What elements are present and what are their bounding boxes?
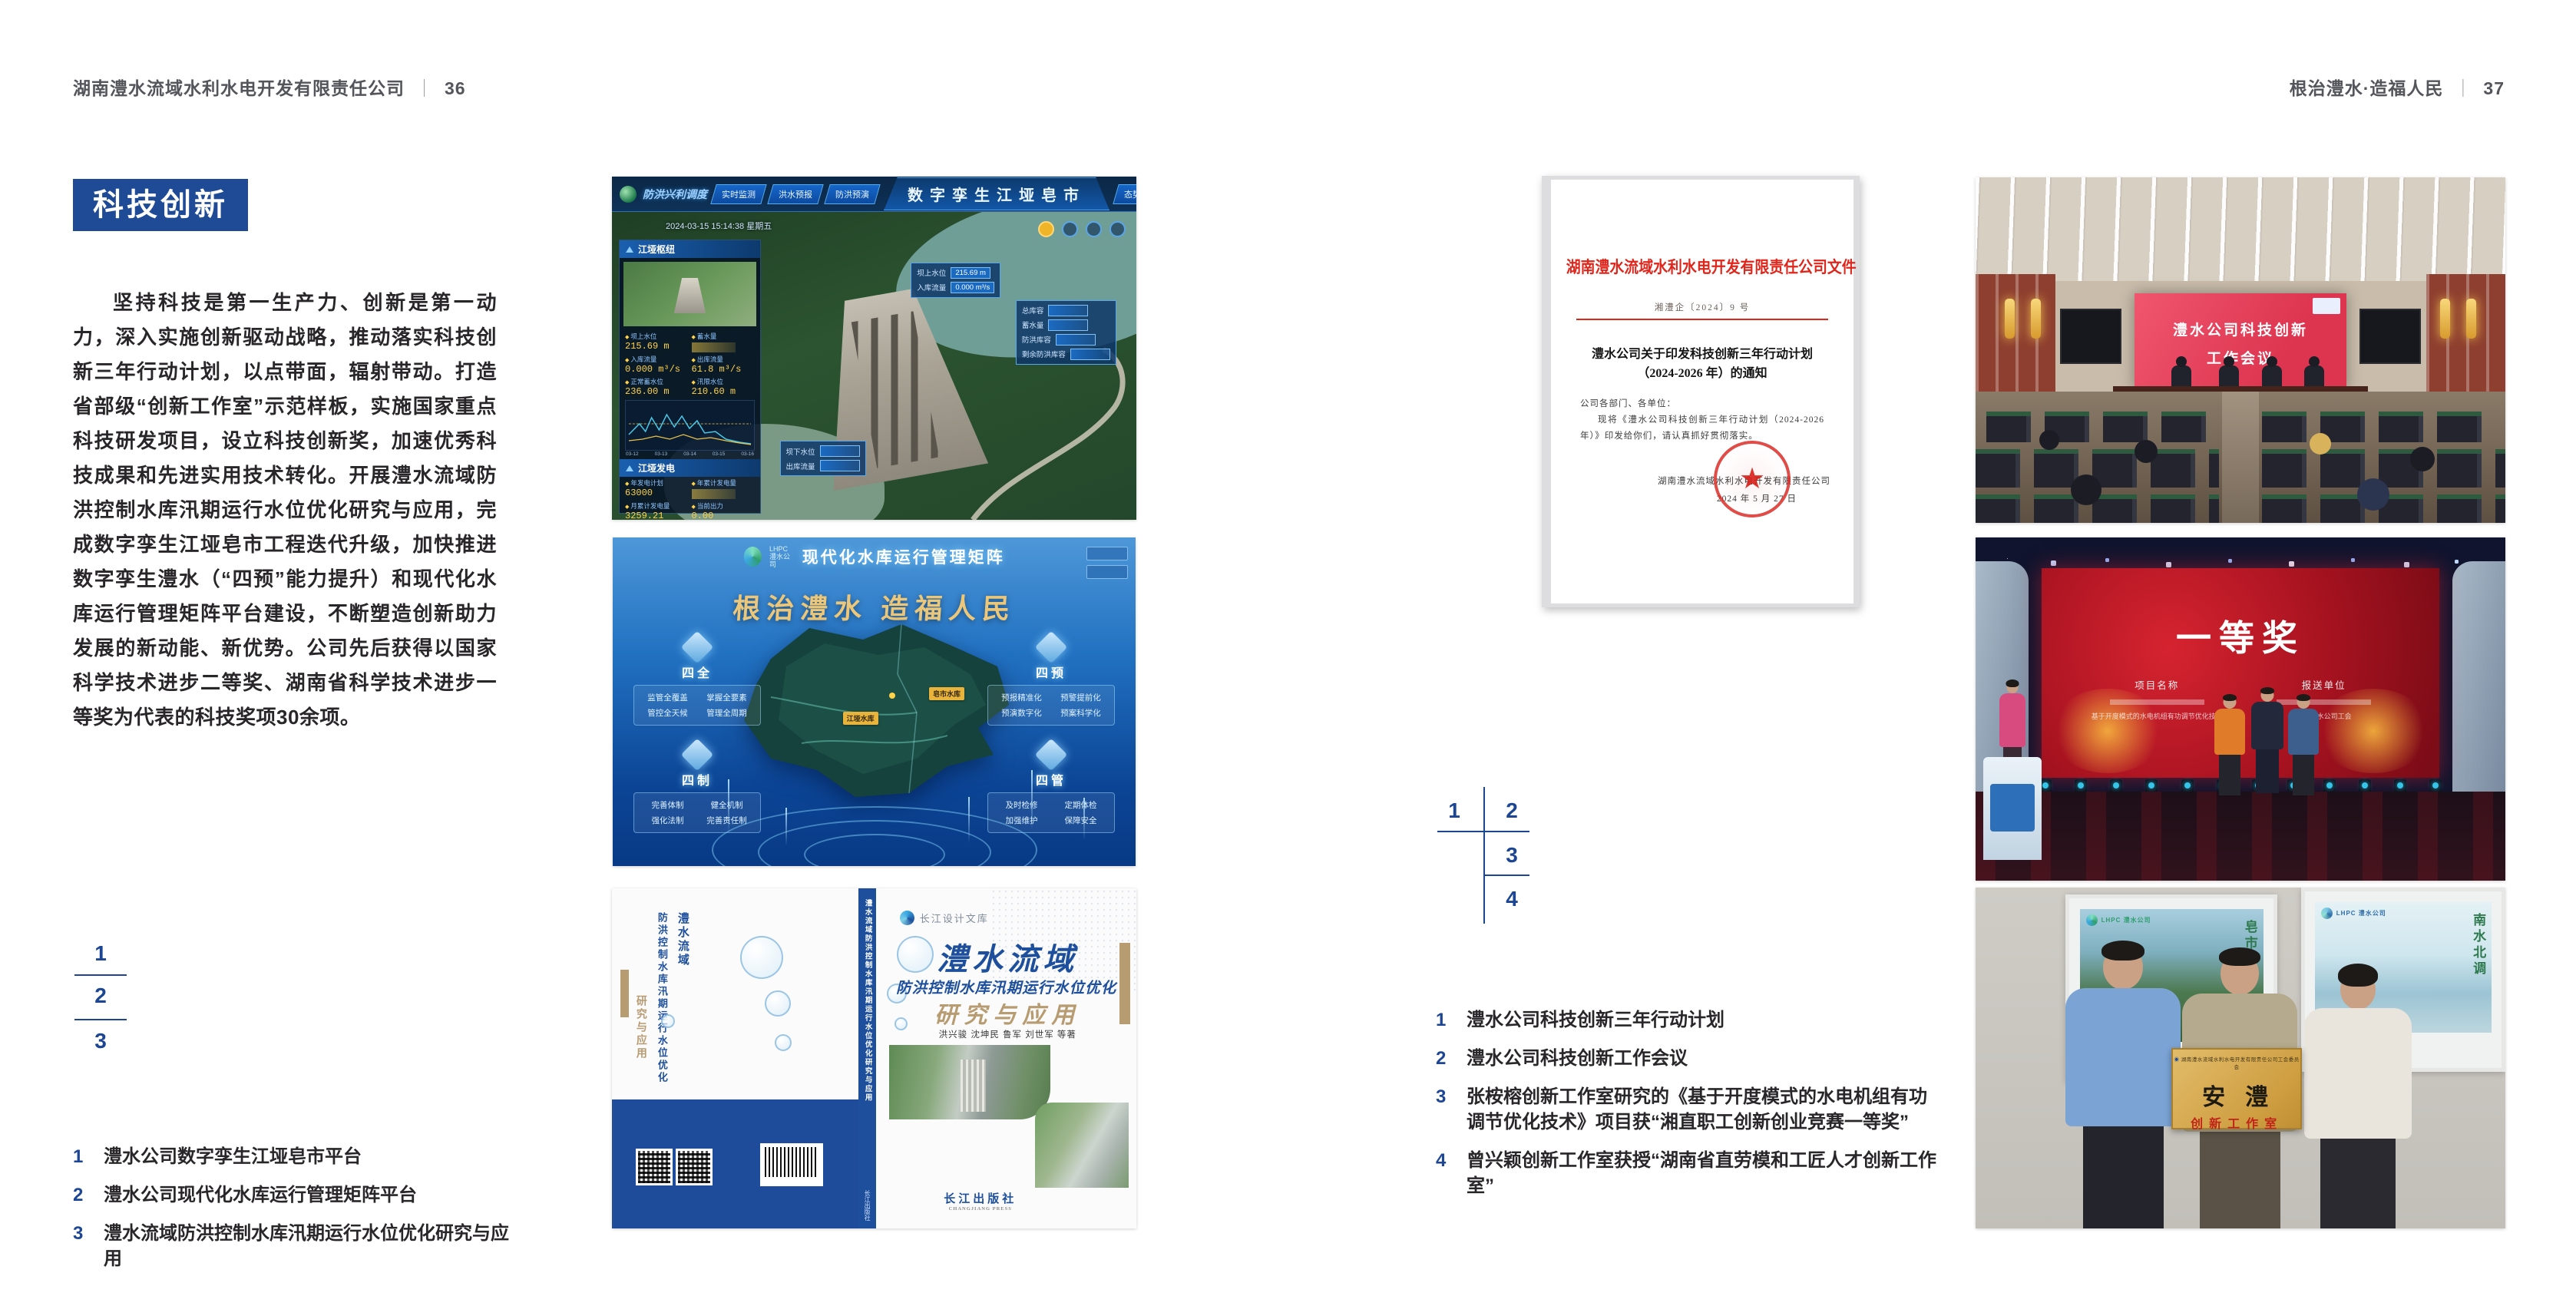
tan-accent-block xyxy=(620,970,629,1017)
group-siguan: 四管 及时检修定期体检 加强维护保障安全 xyxy=(990,743,1113,833)
locate-icon xyxy=(1086,221,1102,237)
plaque-company-line: 湖南澧水流域水利水电开发有限责任公司工会委员会 xyxy=(2173,1055,2300,1070)
chart-date-axis: 03-1203-1303-1403-1503-16 xyxy=(620,451,760,459)
book-title-tail: 研究与应用 xyxy=(892,996,1124,1030)
map-label-zaoshi: 皂市水库 xyxy=(929,687,964,700)
caption-number: 2 xyxy=(73,1182,87,1208)
caption-text: 澧水公司科技创新三年行动计划 xyxy=(1467,1007,1724,1033)
power-stats-grid: 年发电计划63000 年累计发电量 月累计发电量3259.21 当前出力0.00… xyxy=(620,477,760,520)
light-pillar xyxy=(1031,770,1033,830)
publisher-logo: 长江出版社CHANGJIANG PRESS xyxy=(902,1190,1058,1212)
group-siyu: 四预 预报精准化预警提前化 预演数字化预案科学化 xyxy=(990,636,1113,726)
page-number-left: 36 xyxy=(445,78,466,98)
water-bubble xyxy=(661,1014,675,1028)
settings-icon xyxy=(1109,221,1126,237)
wall-column xyxy=(2426,274,2506,398)
caption-row: 3 张桉榕创新工作室研究的《基于开度模式的水电机组有功调节优化技术》项目获“湘直… xyxy=(1436,1084,1939,1135)
dam-thumbnail xyxy=(623,262,756,326)
mode-label: 防洪兴利调度 xyxy=(643,187,707,202)
back-title-main: 澧水流域 xyxy=(675,912,691,1084)
platform-title: 现代化水库运行管理矩阵 xyxy=(802,545,1005,568)
caption-number: 3 xyxy=(1436,1084,1450,1135)
presenter-suit xyxy=(2251,689,2283,793)
screen-title-line1: 澧水公司科技创新 xyxy=(2135,319,2346,339)
caption-row: 2 澧水公司现代化水库运行管理矩阵平台 xyxy=(73,1182,518,1208)
stat-cell: 蓄水量 xyxy=(692,332,756,352)
group-items: 预报精准化预警提前化 预演数字化预案科学化 xyxy=(987,685,1115,726)
stage-truss-lights xyxy=(2007,558,2008,559)
figure-digital-twin-dashboard: 防洪兴利调度 实时监测 洪水预报 防洪预演 数字孪生江垭皂市 态势预测 预案生成… xyxy=(612,177,1136,520)
capacity-callout: 总库容 蓄水量 防洪库容 剩余防洪库容 xyxy=(1016,300,1116,365)
figure-matrix-platform: LHPC 澧水公司 现代化水库运行管理矩阵 根治澧水 造福人民 皂市水库 江垭水… xyxy=(613,537,1136,866)
figure-index-1: 1 xyxy=(1435,798,1473,823)
downstream-callout: 坝下水位 出库流量 xyxy=(780,441,866,476)
platform-logo-icon xyxy=(620,186,637,203)
tab-realtime-monitoring: 实时监测 xyxy=(710,184,766,204)
book-front-cover: 长江设计文库 澧水流域 防洪控制水库汛期运行水位优化 研究与应用 洪兴骏 沈坤民… xyxy=(876,888,1136,1228)
attendee-head xyxy=(2310,433,2331,455)
panel-title: 江垭发电 xyxy=(638,461,675,474)
caption-number: 1 xyxy=(1436,1007,1450,1033)
caption-number: 2 xyxy=(1436,1046,1450,1071)
left-caption-list: 1 澧水公司数字孪生江垭皂市平台 2 澧水公司现代化水库运行管理矩阵平台 3 澧… xyxy=(73,1144,518,1285)
hub-stats-grid: 坝上水位215.69 m 蓄水量 入库流量0.000 m³/s 出库流量61.8… xyxy=(620,330,760,398)
awardee-orange xyxy=(2214,696,2245,795)
basin-terrain-map xyxy=(725,613,1024,805)
dam-photo-small xyxy=(1035,1103,1129,1188)
project-column: 项目名称 基于开度模式的水电机组有功调节优化技术 xyxy=(2089,677,2224,721)
screen-logo-card xyxy=(2313,298,2340,314)
caption-row: 1 澧水公司科技创新三年行动计划 xyxy=(1436,1007,1939,1033)
caption-text: 曾兴颖创新工作室获授“湖南省直劳模和工匠人才创新工作室” xyxy=(1467,1148,1939,1199)
redacted-text-bar xyxy=(2110,699,2204,705)
window-control-chip xyxy=(1086,565,1128,579)
attendee-head xyxy=(2357,478,2389,511)
spine-publisher: 长江出版社 xyxy=(863,1190,871,1221)
body-paragraph: 坚持科技是第一生产力、创新是第一动力，深入实施创新驱动战略，推动落实科技创新三年… xyxy=(73,286,497,735)
map-label-jiangya: 江垭水库 xyxy=(843,712,878,725)
dam-photo-large xyxy=(889,1045,1050,1119)
platform-header: LHPC 澧水公司 现代化水库运行管理矩阵 xyxy=(743,545,1005,568)
side-display xyxy=(2060,309,2121,364)
figure-index-divider xyxy=(1484,875,1529,876)
caption-text: 澧水流域防洪控制水库汛期运行水位优化研究与应用 xyxy=(104,1221,518,1271)
group-icon xyxy=(681,631,713,663)
figure-index-divider xyxy=(74,974,127,976)
awardee-blue xyxy=(2288,696,2319,795)
tab-flood-forecast: 洪水预报 xyxy=(767,184,823,204)
innovation-studio-plaque: 湖南澧水流域水利水电开发有限责任公司工会委员会 安澧 创新工作室 xyxy=(2171,1048,2302,1129)
marker-icon xyxy=(626,465,633,471)
back-title-sub: 防洪控制水库汛期运行水位优化 xyxy=(655,912,670,1084)
window-control-chip xyxy=(1086,547,1128,560)
qr-code xyxy=(636,1149,673,1185)
official-document: 湖南澧水流域水利水电开发有限责任公司文件 湘澧企〔2024〕9 号 澧水公司关于… xyxy=(1551,180,1853,603)
tab-situation-forecast: 态势预测 xyxy=(1113,184,1136,204)
photo-innovation-conference: 澧水公司科技创新 工作会议 xyxy=(1976,177,2505,523)
figure-index-4: 4 xyxy=(1493,887,1531,911)
caption-text: 澧水公司现代化水库运行管理矩阵平台 xyxy=(104,1182,417,1208)
barcode xyxy=(760,1143,823,1186)
water-bubble xyxy=(775,1034,792,1051)
stat-cell: 入库流量0.000 m³/s xyxy=(625,355,689,375)
attendee-head xyxy=(2039,430,2059,450)
book-title-main: 澧水流域 xyxy=(892,934,1124,979)
figure-index-vline xyxy=(1483,787,1485,924)
caption-row: 2 澧水公司科技创新工作会议 xyxy=(1436,1046,1939,1071)
series-logo: 长江设计文库 xyxy=(900,911,989,925)
figure-book-cover: 澧水流域 防洪控制水库汛期运行水位优化 研究与应用 澧水流域防洪控制水库汛期运行… xyxy=(612,888,1136,1228)
alert-icon xyxy=(1038,221,1054,237)
layers-icon xyxy=(1062,221,1078,237)
caption-row: 1 澧水公司数字孪生江垭皂市平台 xyxy=(73,1144,518,1169)
plaque-main-title: 安澧 xyxy=(2190,1078,2300,1112)
spine-title: 澧水流域防洪控制水库汛期运行水位优化研究与应用 xyxy=(862,899,873,1103)
qr-code xyxy=(676,1149,713,1185)
dashboard-left-panel: 江垭枢纽 坝上水位215.69 m 蓄水量 入库流量0.000 m³/s 出库流… xyxy=(619,240,761,514)
upstream-callout: 坝上水位215.69 m 入库流量0.000 m³/s xyxy=(911,263,1000,298)
audience-row xyxy=(1976,499,2219,524)
document-salutation: 公司各部门、各单位： xyxy=(1580,397,1676,409)
poster-calligraphy: 南水北调 xyxy=(2469,913,2488,977)
poster-logo: LHPC 澧水公司 xyxy=(2086,914,2151,926)
light-pillar xyxy=(728,779,729,833)
plaque-sub-title: 创新工作室 xyxy=(2173,1113,2300,1132)
group-siquan: 四全 监管全覆盖掌握全要素 管控全天候管理全周期 xyxy=(636,636,759,726)
panelist-silhouette xyxy=(2304,365,2324,388)
caption-number: 3 xyxy=(73,1221,87,1271)
header-separator: ｜ xyxy=(415,78,434,98)
section-motto: 根治澧水·造福人民 xyxy=(2290,78,2444,98)
audience-row xyxy=(2262,416,2495,442)
document-title: 澧水公司关于印发科技创新三年行动计划 （2024-2026 年）的通知 xyxy=(1551,345,1853,383)
group-icon xyxy=(1035,739,1067,771)
book-spine: 澧水流域防洪控制水库汛期运行水位优化研究与应用 长江出版社 xyxy=(858,888,876,1228)
light-pillar xyxy=(968,797,970,843)
dashboard-corner-icons xyxy=(1038,221,1126,237)
document-red-header: 湖南澧水流域水利水电开发有限责任公司文件 xyxy=(1566,255,1839,278)
stat-cell: 正常蓄水位236.00 m xyxy=(625,377,689,397)
stage-floor xyxy=(1976,792,2505,881)
attendee-head xyxy=(2135,440,2158,463)
document-body: 现将《澧水公司科技创新三年行动计划（2024-2026 年）》印发给你们，请认真… xyxy=(1580,412,1824,445)
figure-index-3: 3 xyxy=(74,1029,127,1053)
audience-row xyxy=(1986,416,2220,442)
center-aisle xyxy=(2222,392,2259,523)
photo-studio-plaque: LHPC 澧水公司 皂市水库 LHPC 澧水公司 南水北调 湖南澧水流域水利水电… xyxy=(1976,888,2505,1228)
caption-row: 4 曾兴颖创新工作室获授“湖南省直劳模和工匠人才创新工作室” xyxy=(1436,1148,1939,1199)
stat-cell: 汛限水位210.60 m xyxy=(692,377,756,397)
tab-flood-rehearsal: 防洪预演 xyxy=(824,184,880,204)
header-separator: ｜ xyxy=(2454,78,2472,98)
figure-index-divider xyxy=(1437,831,1529,832)
person-blue-polo xyxy=(2065,945,2181,1228)
caption-text: 张桉榕创新工作室研究的《基于开度模式的水电机组有功调节优化技术》项目获“湘直职工… xyxy=(1467,1084,1939,1135)
wall-sconce xyxy=(2466,299,2476,339)
stat-cell: 出库流量61.8 m³/s xyxy=(692,355,756,375)
official-red-seal: ★ xyxy=(1714,441,1791,517)
water-level-chart xyxy=(625,400,755,451)
series-logo-icon xyxy=(900,911,914,925)
back-cover-titles: 澧水流域 防洪控制水库汛期运行水位优化 研究与应用 xyxy=(634,912,691,1084)
stat-cell: 月累计发电量3259.21 xyxy=(625,501,689,520)
photo-award-ceremony: 一等奖 项目名称 基于开度模式的水电机组有功调节优化技术 报送单位 湖南澧水公司… xyxy=(1976,537,2505,881)
group-name: 四全 xyxy=(682,663,713,681)
wall-sconce xyxy=(2440,299,2450,339)
stat-cell: 年累计发电量 xyxy=(692,478,756,499)
attendee-head xyxy=(2410,447,2435,471)
dashboard-timestamp: 2024-03-15 15:14:38 星期五 xyxy=(666,220,772,232)
figure-index-divider xyxy=(74,1019,127,1020)
series-name: 长江设计文库 xyxy=(920,911,989,925)
group-sizhi: 四制 完善体制健全机制 强化法制完善责任制 xyxy=(636,743,759,833)
section-title-badge: 科技创新 xyxy=(73,179,248,231)
panel-header: 江垭发电 xyxy=(620,459,760,477)
wall-column xyxy=(1976,274,2055,398)
marker-icon xyxy=(626,246,633,253)
person-white-tee xyxy=(2304,970,2412,1228)
panelist-silhouette xyxy=(2171,365,2191,388)
water-bubble xyxy=(740,936,783,979)
group-name: 四制 xyxy=(682,770,713,789)
panelist-silhouette xyxy=(2219,365,2239,388)
right-page-header: 根治澧水·造福人民｜37 xyxy=(2290,74,2505,100)
host-podium xyxy=(1983,757,2042,860)
company-logo-text: LHPC 澧水公司 xyxy=(769,545,795,568)
booklet-spread: 湖南澧水流域水利水电开发有限责任公司｜36 科技创新 坚持科技是第一生产力、创新… xyxy=(0,0,2576,1306)
light-pillar xyxy=(1083,798,1085,840)
caption-number: 1 xyxy=(73,1144,87,1169)
group-name: 四预 xyxy=(1036,663,1066,681)
panel-header: 江垭枢纽 xyxy=(620,240,760,258)
company-logo-icon xyxy=(743,547,762,567)
figure-index-1: 1 xyxy=(74,941,127,966)
dashboard-title: 数字孪生江垭皂市 xyxy=(884,177,1109,210)
award-title: 一等奖 xyxy=(2042,610,2439,661)
group-items: 监管全覆盖掌握全要素 管控全天候管理全周期 xyxy=(633,685,761,726)
left-page-header: 湖南澧水流域水利水电开发有限责任公司｜36 xyxy=(73,74,466,100)
document-red-rule xyxy=(1576,319,1828,320)
dashboard-top-bar: 防洪兴利调度 实时监测 洪水预报 防洪预演 数字孪生江垭皂市 态势预测 预案生成… xyxy=(612,177,1136,212)
stat-cell: 年发电计划63000 xyxy=(625,478,689,499)
side-display xyxy=(2359,309,2421,364)
group-name: 四管 xyxy=(1036,770,1066,789)
company-name: 湖南澧水流域水利水电开发有限责任公司 xyxy=(73,78,405,98)
caption-row: 3 澧水流域防洪控制水库汛期运行水位优化研究与应用 xyxy=(73,1221,518,1271)
group-icon xyxy=(681,739,713,771)
caption-text: 澧水公司科技创新工作会议 xyxy=(1467,1046,1688,1071)
back-cover-blue-band xyxy=(612,1099,876,1228)
book-title-sub: 防洪控制水库汛期运行水位优化 xyxy=(881,975,1131,997)
right-caption-list: 1 澧水公司科技创新三年行动计划 2 澧水公司科技创新工作会议 3 张桉榕创新工… xyxy=(1436,1007,1939,1212)
document-number: 湘澧企〔2024〕9 号 xyxy=(1551,301,1853,313)
caption-text: 澧水公司数字孪生江垭皂市平台 xyxy=(104,1144,362,1169)
page-number-right: 37 xyxy=(2483,78,2505,98)
water-bubble xyxy=(765,990,791,1017)
figure-index-2: 2 xyxy=(1493,798,1531,823)
stat-cell: 坝上水位215.69 m xyxy=(625,332,689,352)
panel-title: 江垭枢纽 xyxy=(638,243,675,256)
light-pillar xyxy=(785,808,787,846)
wall-sconce xyxy=(2031,299,2041,339)
back-title-tail: 研究与应用 xyxy=(634,995,650,1084)
panelist-silhouette xyxy=(2262,365,2282,388)
poster-logo: LHPC 澧水公司 xyxy=(2321,908,2386,919)
group-icon xyxy=(1035,631,1067,663)
book-authors: 洪兴骏 沈坤民 鲁军 刘世军 等著 xyxy=(892,1028,1124,1040)
caption-number: 4 xyxy=(1436,1148,1450,1199)
stat-cell: 当前出力0.00 xyxy=(692,501,756,520)
figure-index-3: 3 xyxy=(1493,843,1531,868)
figure-index-2: 2 xyxy=(74,984,127,1008)
wall-sconce xyxy=(2005,299,2015,339)
attendee-head xyxy=(2071,474,2101,505)
